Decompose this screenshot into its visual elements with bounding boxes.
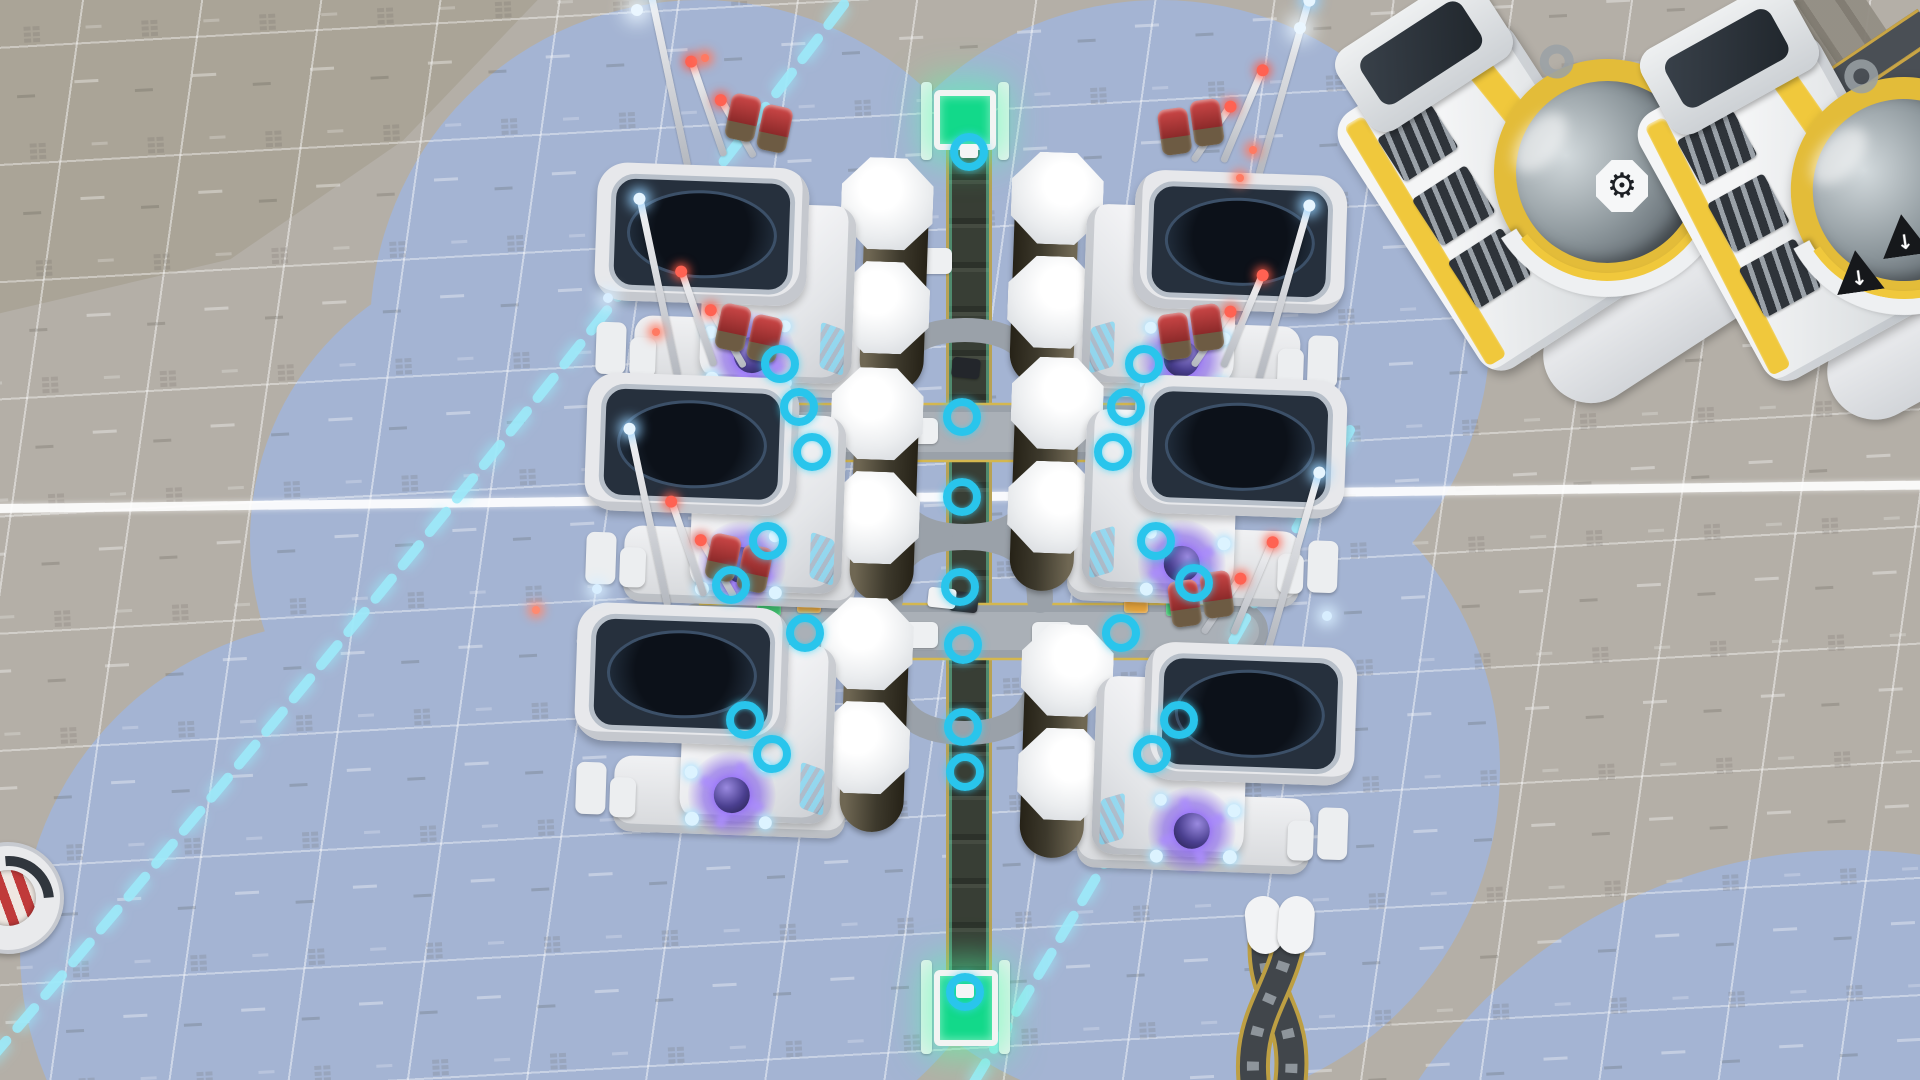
- game-viewport: ⚙↓↓: [0, 0, 1920, 1080]
- basin-rim: [1146, 181, 1334, 303]
- connection-ring: [780, 388, 818, 426]
- light-sparkle: [631, 4, 643, 16]
- blue-decal: [1089, 526, 1115, 579]
- light-sparkle: [1322, 611, 1332, 621]
- connection-ring: [944, 626, 982, 664]
- connection-ring: [1102, 614, 1140, 652]
- red-canister: [1189, 98, 1225, 148]
- ring-item: [960, 144, 978, 158]
- basin-rim: [608, 173, 796, 295]
- light-sparkle: [1249, 146, 1257, 154]
- connection-ring: [1175, 564, 1213, 602]
- red-canister: [1157, 312, 1193, 362]
- connection-ring: [1107, 388, 1145, 426]
- connection-ring: [1094, 433, 1132, 471]
- blue-decal: [1099, 793, 1125, 846]
- badge-glyph: ⚙: [1607, 160, 1637, 212]
- light-sparkle: [592, 584, 602, 594]
- connection-ring: [1160, 701, 1198, 739]
- connection-ring: [753, 735, 791, 773]
- connection-ring: [943, 398, 981, 436]
- chemical-tower-bottom-left[interactable]: [570, 542, 951, 865]
- light-sparkle: [652, 328, 660, 336]
- basin-pool: [1163, 195, 1316, 288]
- connection-ring: [786, 614, 824, 652]
- connection-ring: [712, 566, 750, 604]
- orb-core: [1173, 812, 1210, 849]
- connection-ring: [749, 522, 787, 560]
- connection-ring: [1137, 522, 1175, 560]
- badge-glyph: ↓: [1895, 229, 1915, 255]
- gear-icon: ⚙: [1596, 160, 1648, 212]
- light-sparkle: [1236, 174, 1244, 182]
- reactor-basin: [594, 162, 811, 307]
- connection-ring: [946, 753, 984, 791]
- badge-glyph: ↓: [1849, 265, 1869, 291]
- connection-ring: [950, 133, 988, 171]
- support-feet: [1273, 800, 1349, 867]
- connection-ring: [943, 478, 981, 516]
- connection-ring: [1133, 735, 1171, 773]
- connection-ring: [1125, 345, 1163, 383]
- basin-rim: [1146, 386, 1334, 508]
- belt-rail: [921, 960, 932, 1054]
- blue-decal: [799, 762, 824, 817]
- connection-ring: [761, 345, 799, 383]
- red-canister: [1189, 303, 1225, 353]
- basin-rim: [598, 383, 786, 505]
- connection-ring: [944, 708, 982, 746]
- belt-end-cap: [1276, 895, 1316, 955]
- connection-ring: [793, 433, 831, 471]
- ring-item: [956, 984, 974, 998]
- light-sparkle: [701, 54, 709, 62]
- connection-ring: [946, 973, 984, 1011]
- reactor-basin: [1132, 169, 1349, 314]
- reactor-basin: [584, 372, 801, 517]
- connection-ring: [941, 568, 979, 606]
- light-sparkle: [1294, 22, 1306, 34]
- reactor-basin: [1132, 374, 1349, 519]
- orb-core: [713, 776, 750, 813]
- red-canister: [1157, 107, 1193, 157]
- basin-pool: [1163, 400, 1316, 493]
- light-sparkle: [532, 606, 540, 614]
- red-canister: [755, 103, 794, 154]
- connection-ring: [726, 701, 764, 739]
- belt-rail: [999, 960, 1010, 1054]
- light-sparkle: [603, 293, 613, 303]
- support-feet: [575, 756, 651, 823]
